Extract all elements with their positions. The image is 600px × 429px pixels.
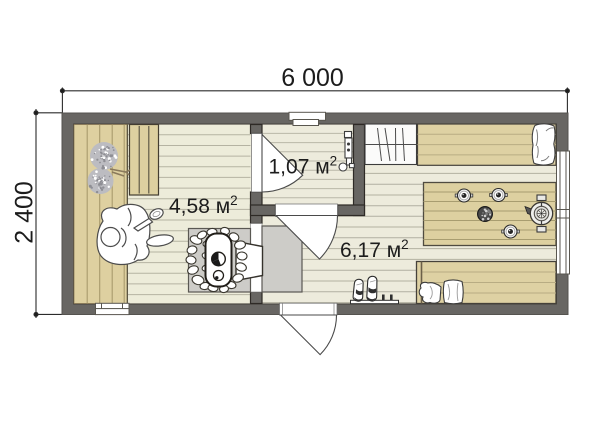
svg-text:4,58 м2: 4,58 м2 [169,193,238,218]
svg-text:1,07 м2: 1,07 м2 [269,154,338,179]
svg-text:6 000: 6 000 [281,64,344,92]
svg-text:2 400: 2 400 [11,181,39,244]
svg-text:6,17 м2: 6,17 м2 [340,237,409,262]
